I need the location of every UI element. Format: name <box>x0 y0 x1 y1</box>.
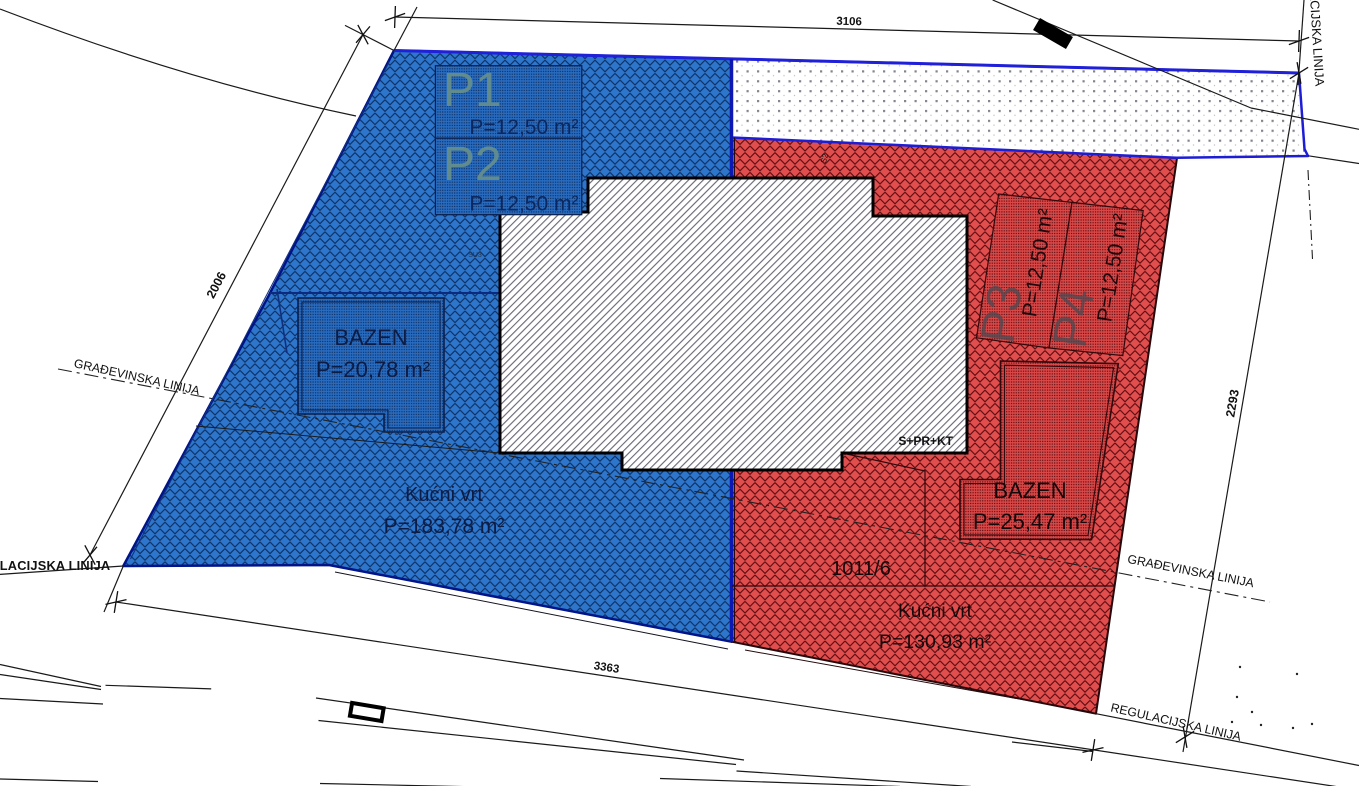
svg-text:SU3: SU3 <box>468 252 482 259</box>
svg-text:REGULACIJSKA LINIJA: REGULACIJSKA LINIJA <box>0 558 110 573</box>
svg-text:P=12,50 m²: P=12,50 m² <box>469 116 578 139</box>
svg-text:P=130,93 m²: P=130,93 m² <box>879 631 992 653</box>
svg-text:P1: P1 <box>443 64 502 117</box>
svg-text:Kućni vrt: Kućni vrt <box>405 484 483 506</box>
svg-text:P=183,78 m²: P=183,78 m² <box>384 515 505 538</box>
svg-text:Kućni vrt: Kućni vrt <box>898 601 973 622</box>
svg-text:BAZEN: BAZEN <box>334 325 407 350</box>
svg-text:P=12,50 m²: P=12,50 m² <box>469 193 578 216</box>
svg-text:BAZEN: BAZEN <box>993 478 1066 503</box>
svg-text:P=25,47 m²: P=25,47 m² <box>973 509 1087 534</box>
svg-text:P=20,78 m²: P=20,78 m² <box>316 357 430 382</box>
svg-text:S+PR+KT: S+PR+KT <box>898 434 953 448</box>
svg-text:P2: P2 <box>443 138 502 191</box>
svg-text:3106: 3106 <box>836 16 862 29</box>
svg-text:1011/6: 1011/6 <box>831 558 891 580</box>
